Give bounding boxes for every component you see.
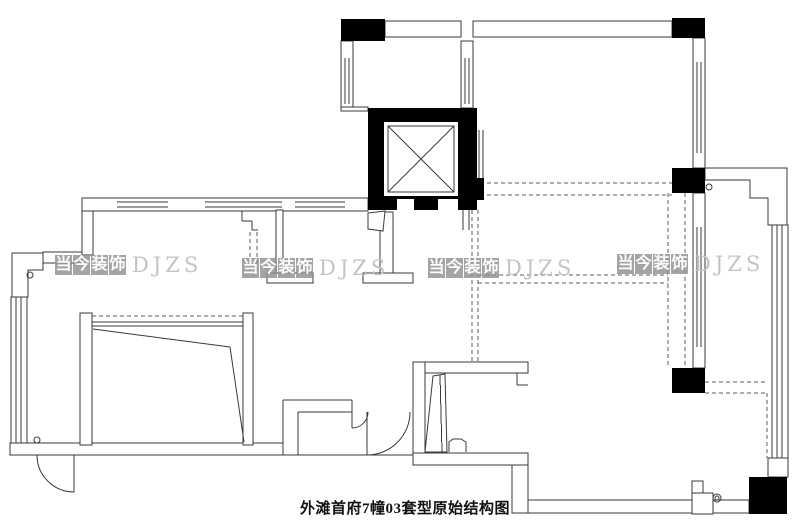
- wall-segment: [43, 252, 82, 263]
- door-swing-arc: [37, 455, 74, 492]
- sliding-door-leaf-line: [230, 347, 244, 442]
- elevator-door-gap: [397, 199, 414, 210]
- fixture-circle: [715, 496, 719, 500]
- elevator-door-gap: [438, 199, 458, 210]
- wall-segment: [768, 458, 788, 477]
- wall-segment: [276, 210, 283, 273]
- wall-segment: [82, 198, 368, 211]
- drawing-caption: 外滩首府7幢03套型原始结构图: [255, 497, 555, 518]
- wall-segment: [413, 362, 425, 465]
- wall-corner-outline: [368, 211, 385, 231]
- wall-segment: [341, 41, 353, 108]
- wall-segment: [82, 211, 93, 255]
- wall-segment: [692, 481, 703, 493]
- door-swing-arc: [367, 412, 410, 455]
- wall-segment: [80, 313, 92, 445]
- sliding-door-leaf-line: [93, 329, 230, 347]
- structural-column: [341, 19, 385, 41]
- wall-segment: [772, 225, 788, 458]
- fixture-circle: [706, 184, 712, 190]
- structural-column: [672, 368, 705, 393]
- entry-fixture-outline: [449, 439, 466, 452]
- structural-column: [672, 168, 705, 193]
- wall-segment: [363, 273, 413, 283]
- structural-column: [477, 178, 484, 200]
- wall-segment: [11, 297, 27, 443]
- wall-segment: [413, 453, 528, 465]
- wall-segment: [10, 443, 283, 455]
- wall-segment: [385, 21, 461, 37]
- wall-segment: [693, 193, 705, 368]
- wall-corner-outline: [425, 374, 447, 452]
- wall-segment: [243, 313, 253, 445]
- wall-segment: [425, 362, 528, 373]
- structural-column: [672, 18, 705, 38]
- wall-segment: [473, 21, 672, 37]
- wall-segment: [692, 493, 713, 514]
- structural-column: [749, 477, 787, 514]
- wall-segment: [693, 38, 705, 168]
- wall-segment: [341, 107, 368, 111]
- fixture-circle: [34, 437, 40, 443]
- wall-segment: [461, 41, 473, 108]
- wall-corner-outline: [705, 168, 787, 225]
- wall-segment: [267, 273, 313, 283]
- door-swing-arc: [352, 412, 368, 428]
- floorplan-drawing: [0, 0, 805, 531]
